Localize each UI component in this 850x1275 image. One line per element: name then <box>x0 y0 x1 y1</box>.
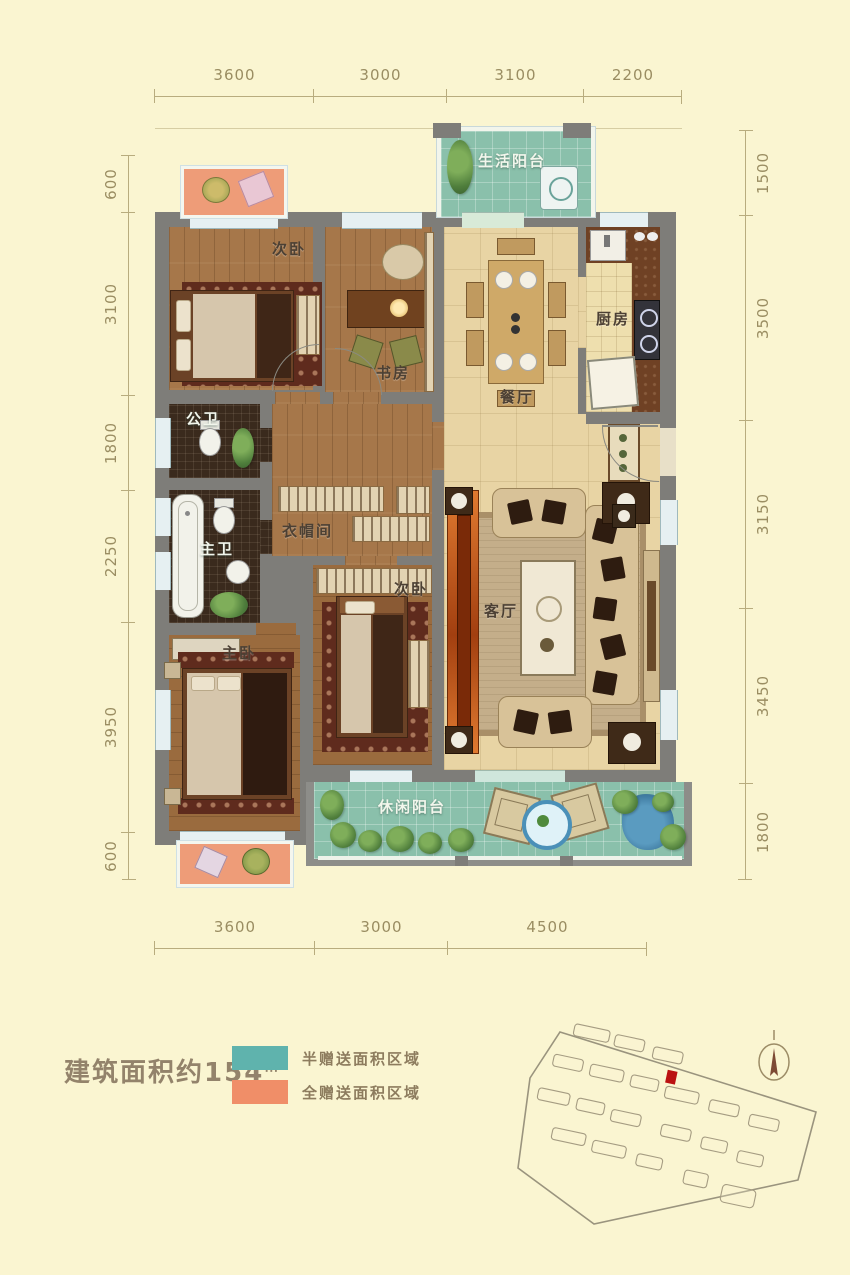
dim-segment: 2200 <box>584 60 682 97</box>
dim-segment: 600 <box>94 155 129 212</box>
legend-item-half-gift: 半赠送面积区域 <box>232 1046 421 1070</box>
dim-chain-top: 3600 3000 3100 2200 <box>155 60 682 97</box>
room-label-leisure-balcony: 休闲阳台 <box>378 796 446 817</box>
dim-segment: 3450 <box>745 608 780 783</box>
sink-bowl <box>647 232 658 241</box>
bookshelf <box>424 232 434 392</box>
legend-label-full-gift: 全赠送面积区域 <box>302 1082 421 1103</box>
plant <box>232 428 254 468</box>
balcony-table <box>522 800 572 850</box>
wall-post <box>455 856 468 866</box>
dim-extension-line-top <box>155 128 682 129</box>
dim-segment: 3600 <box>155 912 315 949</box>
chair <box>548 330 566 366</box>
chair <box>497 238 535 255</box>
window <box>155 552 171 590</box>
dim-segment: 3100 <box>94 212 129 395</box>
toilet <box>199 428 221 456</box>
sofa-bottom <box>498 696 592 748</box>
dim-chain-bottom: 3600 3000 4500 <box>155 912 647 949</box>
dim-segment: 4500 <box>448 912 647 949</box>
plant <box>660 824 686 850</box>
dim-segment: 1800 <box>745 783 780 880</box>
room-label-cloakroom: 衣帽间 <box>282 520 333 541</box>
bed-master <box>182 668 292 800</box>
plant <box>320 790 344 820</box>
sofa-main <box>585 505 639 705</box>
nightstand <box>164 788 181 805</box>
dim-segment: 3950 <box>94 622 129 832</box>
site-plan-current-unit <box>665 1070 677 1085</box>
chair <box>548 282 566 318</box>
chair <box>466 282 484 318</box>
legend-swatch-half-gift <box>232 1046 288 1070</box>
kitchen-sink <box>590 230 626 261</box>
plant <box>652 792 674 812</box>
wall-kitchen-bottom <box>586 412 660 424</box>
dim-segment: 3150 <box>745 420 780 608</box>
dim-segment: 3600 <box>155 60 314 97</box>
toilet <box>213 506 235 534</box>
window <box>155 498 171 536</box>
legend-label-half-gift: 半赠送面积区域 <box>302 1048 421 1069</box>
entry-door-opening <box>660 428 676 476</box>
ottoman <box>382 244 424 280</box>
legend-item-full-gift: 全赠送面积区域 <box>232 1080 421 1104</box>
clothes-rack <box>278 486 384 512</box>
room-label-life-balcony: 生活阳台 <box>478 150 546 171</box>
plant <box>418 832 442 854</box>
plant-pot <box>445 726 473 754</box>
bath-sink <box>226 560 250 584</box>
bed <box>170 290 294 382</box>
nightstand <box>164 662 181 679</box>
balcony-door <box>462 212 524 228</box>
wall-kitchen-left <box>578 348 586 412</box>
room-label-living: 客厅 <box>484 600 518 621</box>
legend-swatch-full-gift <box>232 1080 288 1104</box>
clothes-rack <box>352 516 430 542</box>
dim-segment: 3000 <box>314 60 447 97</box>
door-opening-kitchen <box>578 277 586 348</box>
dresser <box>408 640 430 708</box>
carpet-runner <box>178 798 294 814</box>
window <box>660 500 678 545</box>
plant <box>447 140 473 194</box>
plant <box>358 830 382 852</box>
dim-chain-right: 1500 3500 3150 3450 1800 <box>745 130 780 880</box>
dim-segment: 3500 <box>745 215 780 420</box>
room-label-bedroom2-top: 次卧 <box>272 238 306 259</box>
room-label-master-bath: 主卫 <box>200 538 234 559</box>
sideboard <box>643 550 660 702</box>
compass-icon <box>752 1028 796 1090</box>
desk <box>347 290 427 328</box>
side-table <box>608 722 656 764</box>
plant <box>330 822 356 848</box>
hallway <box>272 404 432 478</box>
wall-kitchen-left <box>578 227 586 277</box>
door-opening-public-bath <box>260 428 272 462</box>
door-opening-hallway <box>432 422 444 470</box>
chair <box>466 330 484 366</box>
window <box>155 690 171 750</box>
wall-post <box>433 123 461 138</box>
room-label-study: 书房 <box>376 362 410 383</box>
wall-post <box>563 123 591 138</box>
plant <box>612 790 638 814</box>
room-label-bedroom2-bottom: 次卧 <box>394 578 428 599</box>
tv-cabinet <box>447 490 479 754</box>
window <box>155 418 171 468</box>
dim-segment: 3000 <box>315 912 448 949</box>
door-opening-bedroom2-top <box>275 392 320 404</box>
plant <box>448 828 474 852</box>
room-label-public-bath: 公卫 <box>186 408 220 429</box>
dim-segment: 1800 <box>94 395 129 490</box>
bed <box>336 596 408 738</box>
room-label-dining: 餐厅 <box>500 386 534 407</box>
wall-post <box>560 856 573 866</box>
door-opening-bedroom2-bottom <box>345 556 397 565</box>
clothes-rack <box>396 486 430 514</box>
door-opening-master-bedroom <box>256 623 296 635</box>
plant-pot <box>445 487 473 515</box>
sofa-top <box>492 488 586 538</box>
bay-window-gift-bottom <box>177 841 293 887</box>
stove <box>634 300 660 360</box>
coffee-table <box>520 560 576 676</box>
dim-segment: 600 <box>94 832 129 880</box>
dim-segment: 3100 <box>447 60 584 97</box>
balcony-rail <box>318 856 682 860</box>
door-leaf-entry <box>602 425 658 427</box>
sink-bowl <box>634 232 645 241</box>
plant <box>386 826 414 852</box>
window <box>660 690 678 740</box>
dining-table <box>488 260 544 384</box>
room-label-kitchen: 厨房 <box>596 308 630 329</box>
bay-window-gift-top <box>181 166 287 218</box>
plant <box>210 592 248 618</box>
window <box>342 212 422 229</box>
dim-segment: 2250 <box>94 490 129 622</box>
dim-segment: 1500 <box>745 130 780 215</box>
door-opening-master-bath <box>260 520 272 554</box>
room-label-master-bedroom: 主卧 <box>222 642 256 663</box>
dim-chain-left: 600 3100 1800 2250 3950 600 <box>94 155 129 880</box>
door-mat <box>612 504 636 528</box>
kitchen-cabinet <box>587 356 639 410</box>
floorplan-page: 3600 3000 3100 2200 3600 3000 4500 600 3… <box>0 0 850 1275</box>
washing-machine <box>540 166 578 210</box>
